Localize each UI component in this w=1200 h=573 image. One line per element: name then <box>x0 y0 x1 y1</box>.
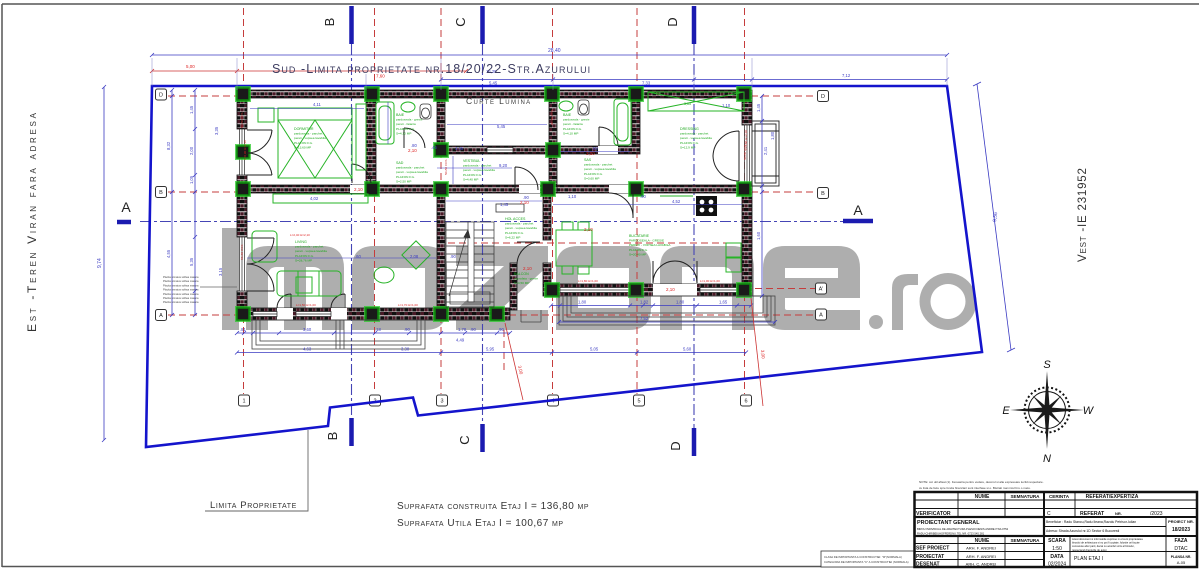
svg-text:Sud -Limita proprietate nr.18/: Sud -Limita proprietate nr.18/20/22-Str.… <box>272 62 591 76</box>
svg-text:L=0,90 H=2,10: L=0,90 H=2,10 <box>243 140 247 160</box>
svg-text:DATA: DATA <box>1050 554 1064 560</box>
svg-text:S=4,40 MP: S=4,40 MP <box>463 177 478 181</box>
svg-text:2,41: 2,41 <box>763 146 768 155</box>
svg-text:SCARA: SCARA <box>1048 538 1066 544</box>
svg-text:B: B <box>159 190 163 196</box>
svg-text:PLAFON F.G.: PLAFON F.G. <box>396 175 415 179</box>
svg-text:Placita urmatus softwa masura: Placita urmatus softwa masura <box>163 288 199 292</box>
svg-text:SEMNATURA: SEMNATURA <box>1010 494 1040 499</box>
svg-text:A: A <box>121 199 131 215</box>
svg-text:PLAFON F.G.: PLAFON F.G. <box>505 231 524 235</box>
svg-text:D: D <box>668 441 683 450</box>
svg-text:1,80: 1,80 <box>770 131 775 140</box>
svg-text:CLASA DE IMPORTANTA A CONSTRUC: CLASA DE IMPORTANTA A CONSTRUCTIEI: "III… <box>824 555 902 559</box>
svg-text:ARH. F. ANDREI: ARH. F. ANDREI <box>966 546 996 551</box>
svg-text:PROIECTANT GENERAL: PROIECTANT GENERAL <box>917 520 980 526</box>
svg-text:SEF PROIECT: SEF PROIECT <box>916 546 949 552</box>
svg-text:SAD: SAD <box>396 161 404 165</box>
svg-text:/2023: /2023 <box>1150 511 1163 517</box>
svg-text:HOL ACCES: HOL ACCES <box>505 217 526 221</box>
svg-text:pardoseala - parchet: pardoseala - parchet <box>295 245 324 249</box>
svg-text:2,10: 2,10 <box>666 287 675 292</box>
svg-text:pereti - vopsea lavabila: pereti - vopsea lavabila <box>295 249 327 253</box>
svg-text:PLAN ETAJ I: PLAN ETAJ I <box>1074 556 1103 562</box>
svg-text:3,35: 3,35 <box>214 126 219 135</box>
svg-text:Vest -IE 231952: Vest -IE 231952 <box>1077 167 1089 262</box>
svg-text:S=4,10 MP: S=4,10 MP <box>563 131 578 135</box>
svg-text:REFERAT/EXPERTIZA: REFERAT/EXPERTIZA <box>1086 494 1139 500</box>
svg-text:50x50 COS: 50x50 COS <box>444 159 448 175</box>
svg-text:B: B <box>821 191 825 197</box>
svg-text:3,15: 3,15 <box>218 267 223 276</box>
svg-text:1,80: 1,80 <box>676 300 685 305</box>
svg-text:pereti - vopsea lavabila: pereti - vopsea lavabila <box>680 136 712 140</box>
svg-text:pereti - vopsea lavabila: pereti - vopsea lavabila <box>505 226 537 230</box>
svg-text:.90: .90 <box>404 327 410 332</box>
svg-text:pereti - vopsea lavabila: pereti - vopsea lavabila <box>294 136 326 140</box>
svg-text:pardoseala - parchet: pardoseala - parchet <box>396 166 425 170</box>
svg-text:PLAFON F.G.: PLAFON F.G. <box>396 127 415 131</box>
svg-text:9,74: 9,74 <box>97 258 103 268</box>
svg-text:50x50 COS: 50x50 COS <box>743 144 747 160</box>
svg-text:respectand drepturile de autor: respectand drepturile de autor. <box>1072 548 1107 552</box>
svg-text:Placita urmatus softwa masura: Placita urmatus softwa masura <box>163 300 199 304</box>
svg-text:VERIFICATOR: VERIFICATOR <box>916 511 951 517</box>
svg-text:1,45: 1,45 <box>756 103 761 112</box>
svg-text:3: 3 <box>440 399 443 405</box>
svg-text:PLAFON F.G.: PLAFON F.G. <box>563 127 582 131</box>
svg-text:3,60: 3,60 <box>303 327 312 332</box>
svg-text:pereti - faianta: pereti - faianta <box>563 122 583 126</box>
svg-text:2,10: 2,10 <box>408 148 417 153</box>
svg-text:Placita urmatus softwa masura: Placita urmatus softwa masura <box>163 283 199 287</box>
svg-text:pardoseala - parchet: pardoseala - parchet <box>584 163 613 167</box>
svg-text:B: B <box>322 18 337 27</box>
svg-text:S=6,22 MP: S=6,22 MP <box>505 235 520 239</box>
svg-text:02/2024: 02/2024 <box>1048 562 1066 568</box>
svg-text:DTAC: DTAC <box>1174 546 1188 552</box>
svg-text:A: A <box>159 313 163 319</box>
svg-text:pardoseala - parchet: pardoseala - parchet <box>463 164 492 168</box>
svg-text:PLAFON F.G.: PLAFON F.G. <box>463 173 482 177</box>
svg-text:SEMNATURA: SEMNATURA <box>1010 538 1040 543</box>
svg-text:L=2,40 H=2,10: L=2,40 H=2,10 <box>290 233 310 237</box>
svg-text:.90: .90 <box>498 327 504 332</box>
svg-text:NOTE: cot util afisat (1). Fer: NOTE: cot util afisat (1). Fereastra pen… <box>919 480 1044 484</box>
svg-text:Placita urmatus softwa masura: Placita urmatus softwa masura <box>163 292 199 296</box>
svg-text:S=28,76 MP: S=28,76 MP <box>295 258 312 262</box>
svg-text:C: C <box>1047 511 1051 517</box>
svg-text:.90: .90 <box>450 254 456 259</box>
svg-text:A: A <box>853 202 863 218</box>
svg-text:NUME: NUME <box>975 538 990 544</box>
svg-text:Est -Teren Viran fara adresa: Est -Teren Viran fara adresa <box>25 110 39 332</box>
svg-text:S=3,60 MP: S=3,60 MP <box>584 176 599 180</box>
svg-text:18/2023: 18/2023 <box>1172 527 1190 533</box>
svg-text:DESENAT: DESENAT <box>916 562 940 568</box>
svg-text:.18: .18 <box>375 327 381 332</box>
svg-text:.90: .90 <box>470 327 476 332</box>
svg-text:RADU-CHIRIBEIUHOFFERDNU.TEL NR: RADU-CHIRIBEIUHOFFERDNU.TEL NR. 0723 545… <box>917 532 985 536</box>
svg-text:LIVING: LIVING <box>295 240 307 244</box>
svg-text:1,60: 1,60 <box>756 231 761 240</box>
svg-text:8,32: 8,32 <box>166 141 171 150</box>
svg-text:D: D <box>821 94 825 100</box>
svg-text:.46: .46 <box>431 145 437 150</box>
svg-text:4,11: 4,11 <box>313 102 322 107</box>
svg-text:PLAFON F.G.: PLAFON F.G. <box>629 248 648 252</box>
svg-text:L=1,50 H=1,00: L=1,50 H=1,00 <box>296 303 316 307</box>
svg-text:N: N <box>1043 453 1051 465</box>
svg-text:9,56: 9,56 <box>992 212 999 223</box>
svg-text:DRESSING: DRESSING <box>680 127 699 131</box>
svg-text:50x50 COS: 50x50 COS <box>240 244 244 260</box>
svg-text:D: D <box>159 93 163 99</box>
svg-text:pereti - faianta: pereti - faianta <box>396 122 416 126</box>
svg-text:BAIE: BAIE <box>563 113 572 117</box>
svg-text:pereti - vopsea lavabila: pereti - vopsea lavabila <box>584 167 616 171</box>
svg-text:ARH. C. ANDREI: ARH. C. ANDREI <box>966 562 997 567</box>
svg-text:CATEGORIA DE IMPORTANTA "C" A: CATEGORIA DE IMPORTANTA "C" A CONSTRUCTI… <box>824 560 909 564</box>
svg-text:pardoseala - parchet: pardoseala - parchet <box>680 132 709 136</box>
svg-text:1,82: 1,82 <box>640 300 649 305</box>
svg-text:A': A' <box>819 287 824 293</box>
svg-text:pardoseala - parchet: pardoseala - parchet <box>294 132 323 136</box>
svg-text:4,49: 4,49 <box>456 338 465 343</box>
svg-text:1:50: 1:50 <box>1052 546 1062 552</box>
svg-text:50x50 COS: 50x50 COS <box>240 112 244 128</box>
svg-text:2,10: 2,10 <box>520 200 529 205</box>
svg-text:FAZA: FAZA <box>1174 538 1187 544</box>
svg-text:S=2,50 MP: S=2,50 MP <box>396 179 411 183</box>
svg-text:C: C <box>457 435 472 444</box>
svg-text:3,30: 3,30 <box>401 347 410 352</box>
svg-text:.81: .81 <box>240 327 246 332</box>
svg-text:5,35: 5,35 <box>189 257 194 266</box>
svg-text:cu lista de faze spre fonda fi: cu lista de faze spre fonda finanziari s… <box>919 486 1031 490</box>
svg-text:Acest document si informatiile: Acest document si informatiile cuprinse … <box>1072 537 1143 541</box>
svg-text:1: 1 <box>242 399 245 405</box>
svg-text:6: 6 <box>744 399 747 405</box>
svg-text:BUCATARIE: BUCATARIE <box>629 234 650 238</box>
svg-text:5,45: 5,45 <box>489 81 498 86</box>
svg-text:Adresa: Strada Azurului nr.1D: Adresa: Strada Azurului nr.1D Sector 6 B… <box>1046 529 1120 533</box>
svg-text:5,45: 5,45 <box>497 124 506 129</box>
svg-text:PLAFON F.G.: PLAFON F.G. <box>680 141 699 145</box>
svg-text:2,10: 2,10 <box>584 227 593 232</box>
svg-text:5,00: 5,00 <box>186 64 195 69</box>
svg-text:3,65: 3,65 <box>684 102 691 106</box>
svg-text:CERINTA: CERINTA <box>1049 494 1070 499</box>
svg-text:PROIECT NR.: PROIECT NR. <box>1168 519 1194 524</box>
svg-text:Placita urmatus softwa masura: Placita urmatus softwa masura <box>163 279 199 283</box>
svg-text:1,78: 1,78 <box>458 327 467 332</box>
svg-text:3,45: 3,45 <box>455 146 464 151</box>
svg-text:4,02: 4,02 <box>310 196 319 201</box>
svg-text:S=20,40 MP: S=20,40 MP <box>629 252 646 256</box>
svg-text:1,10: 1,10 <box>722 103 731 108</box>
svg-text:pereti - vopsea lavabila: pereti - vopsea lavabila <box>396 170 428 174</box>
svg-text:PLANSA NR.: PLANSA NR. <box>1171 555 1192 559</box>
svg-text:1,10: 1,10 <box>568 194 577 199</box>
svg-text:cunoscute altor parti, decat c: cunoscute altor parti, decat cu acordul … <box>1072 544 1135 548</box>
svg-text:biroului de arhitectura si nu: biroului de arhitectura si nu pot fi cop… <box>1072 541 1140 545</box>
svg-text:2,10: 2,10 <box>586 151 595 156</box>
svg-text:W: W <box>1083 405 1095 417</box>
svg-text:pardoseala - parchet: pardoseala - parchet <box>505 222 534 226</box>
svg-text:L=1,00 H=1,00: L=1,00 H=1,00 <box>700 279 720 283</box>
svg-text:S=13,60 MP: S=13,60 MP <box>294 145 311 149</box>
svg-text:suprafata - gresie: suprafata - gresie <box>514 277 538 281</box>
svg-text:Suprafata Utila Etaj I = 100,6: Suprafata Utila Etaj I = 100,67 mp <box>397 518 564 529</box>
svg-text:Placita urmatus softwa masura: Placita urmatus softwa masura <box>163 275 199 279</box>
svg-text:2,08: 2,08 <box>410 254 419 259</box>
svg-text:Beneficiar : Radu Stancu,Radu: Beneficiar : Radu Stancu,Radu Ileana,Raz… <box>1046 520 1136 524</box>
svg-text:BIROU INDIVIDUAL DE ARHITECTUR: BIROU INDIVIDUAL DE ARHITECTURA PLESOI D… <box>917 527 1009 531</box>
svg-text:L=1,70 H=1,00: L=1,70 H=1,00 <box>398 303 418 307</box>
svg-text:VESTIBUL: VESTIBUL <box>463 159 480 163</box>
svg-text:S=4,10 MP: S=4,10 MP <box>396 131 411 135</box>
svg-text:4,63: 4,63 <box>303 347 312 352</box>
svg-text:Limita Proprietate: Limita Proprietate <box>210 500 297 511</box>
svg-text:2,10: 2,10 <box>354 187 363 192</box>
svg-text:1,45: 1,45 <box>189 105 194 114</box>
svg-text:A: A <box>819 313 823 319</box>
svg-text:Placita urmatus softwa masura: Placita urmatus softwa masura <box>163 296 199 300</box>
svg-text:1,80: 1,80 <box>578 300 587 305</box>
svg-text:L=1,80 H=1,00: L=1,80 H=1,00 <box>578 279 598 283</box>
svg-text:pardoseala - gresie: pardoseala - gresie <box>396 118 423 122</box>
svg-text:C: C <box>453 17 468 26</box>
svg-text:pereti - vopsea lavabila: pereti - vopsea lavabila <box>463 168 495 172</box>
svg-text:7,33: 7,33 <box>642 81 651 86</box>
svg-text:4,55: 4,55 <box>166 249 171 258</box>
svg-text:.90: .90 <box>640 194 646 199</box>
svg-text:NUME: NUME <box>975 494 990 500</box>
svg-text:REFERAT: REFERAT <box>1080 511 1105 517</box>
svg-text:9,20: 9,20 <box>499 163 508 168</box>
svg-text:PARDOSEALA - GRESIE: PARDOSEALA - GRESIE <box>629 239 664 243</box>
svg-text:BAIE: BAIE <box>396 113 405 117</box>
svg-text:50x50 COS: 50x50 COS <box>550 109 554 125</box>
svg-text:1,65: 1,65 <box>719 300 728 305</box>
svg-text:Suprafata construita Etaj I =: Suprafata construita Etaj I = 136,80 mp <box>397 501 589 512</box>
svg-text:1,45: 1,45 <box>500 202 509 207</box>
svg-text:2,00: 2,00 <box>189 146 194 155</box>
svg-text:1,05: 1,05 <box>189 175 194 184</box>
svg-text:DORMITOR: DORMITOR <box>294 127 314 131</box>
svg-text:SAS: SAS <box>584 158 592 162</box>
svg-text:4,52: 4,52 <box>672 199 681 204</box>
svg-text:B: B <box>325 432 340 441</box>
svg-text:.60: .60 <box>355 254 361 259</box>
svg-text:PERETI - VOPSEA LAVABILA: PERETI - VOPSEA LAVABILA <box>629 243 671 247</box>
svg-text:28,40: 28,40 <box>548 48 561 54</box>
svg-text:2,10: 2,10 <box>523 266 532 271</box>
svg-text:S: S <box>1043 359 1051 371</box>
svg-text:7,12: 7,12 <box>842 73 851 78</box>
svg-text:Curte Lumina: Curte Lumina <box>466 96 532 106</box>
svg-text:PLAFON F.G.: PLAFON F.G. <box>294 141 313 145</box>
svg-text:5,05: 5,05 <box>590 347 599 352</box>
svg-text:PLAFON F.G.: PLAFON F.G. <box>584 172 603 176</box>
svg-text:pardoseala - gresie: pardoseala - gresie <box>563 118 590 122</box>
svg-text:3,00: 3,00 <box>760 350 766 360</box>
svg-text:5,60: 5,60 <box>683 347 692 352</box>
svg-text:E: E <box>1002 405 1010 417</box>
svg-text:7,52: 7,52 <box>640 316 649 321</box>
svg-text:BALCON: BALCON <box>514 272 529 276</box>
svg-text:PROIECTAT: PROIECTAT <box>916 554 944 560</box>
svg-text:S=4,50 MP: S=4,50 MP <box>514 281 529 285</box>
svg-text:PLAFON F.G.: PLAFON F.G. <box>295 254 314 258</box>
svg-text:NR.: NR. <box>1115 511 1122 516</box>
svg-text:5,95: 5,95 <box>486 347 495 352</box>
svg-text:ARH. F. ANDREI: ARH. F. ANDREI <box>966 554 996 559</box>
svg-text:A-05: A-05 <box>1177 560 1186 565</box>
svg-text:D: D <box>665 17 680 26</box>
svg-text:5: 5 <box>637 399 640 405</box>
svg-text:S=12,9 MP: S=12,9 MP <box>680 145 695 149</box>
